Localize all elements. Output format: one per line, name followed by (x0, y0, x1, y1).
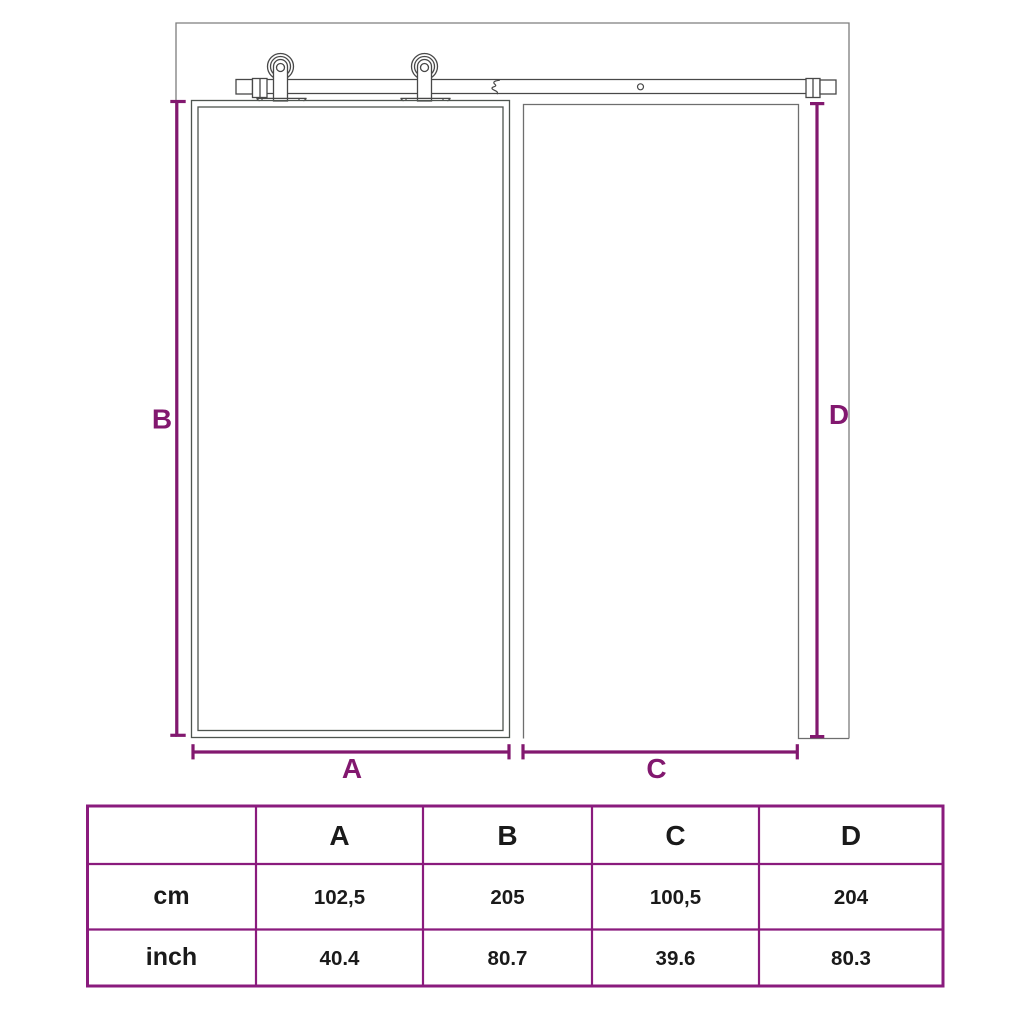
svg-text:204: 204 (834, 886, 869, 909)
svg-text:80.3: 80.3 (831, 947, 871, 970)
svg-text:C: C (646, 753, 666, 784)
svg-text:C: C (665, 820, 685, 851)
svg-text:102,5: 102,5 (314, 886, 365, 909)
svg-text:inch: inch (146, 943, 197, 971)
svg-text:A: A (329, 820, 349, 851)
svg-text:cm: cm (153, 882, 189, 910)
svg-text:80.7: 80.7 (488, 947, 528, 970)
svg-text:100,5: 100,5 (650, 886, 701, 909)
svg-text:A: A (342, 753, 362, 784)
svg-text:D: D (841, 820, 861, 851)
svg-text:39.6: 39.6 (656, 947, 696, 970)
svg-text:205: 205 (490, 886, 524, 909)
svg-text:B: B (497, 820, 517, 851)
svg-text:B: B (152, 404, 172, 435)
svg-text:D: D (829, 399, 849, 430)
svg-text:40.4: 40.4 (320, 947, 360, 970)
